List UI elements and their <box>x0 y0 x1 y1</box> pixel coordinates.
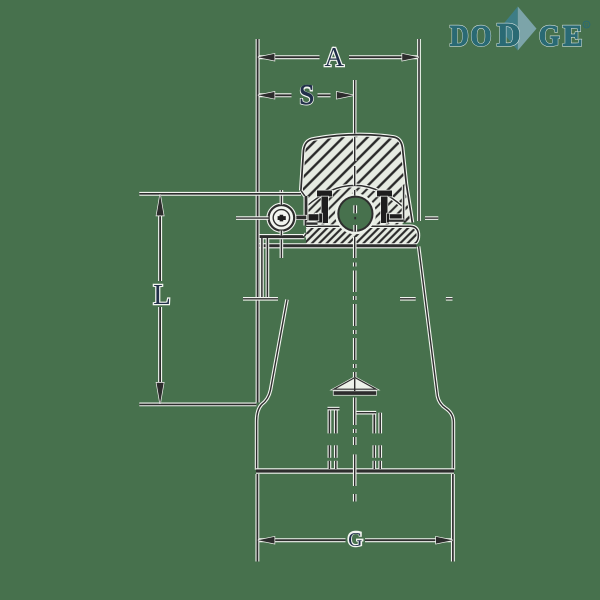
svg-text:O: O <box>471 19 492 52</box>
svg-text:L: L <box>153 279 171 311</box>
svg-text:A: A <box>325 42 345 72</box>
svg-text:R: R <box>585 23 589 29</box>
svg-text:G: G <box>539 19 560 52</box>
svg-text:G: G <box>348 530 362 551</box>
svg-text:D: D <box>450 19 469 52</box>
svg-text:S: S <box>299 80 315 111</box>
svg-text:D: D <box>497 17 520 53</box>
svg-text:E: E <box>563 19 583 52</box>
